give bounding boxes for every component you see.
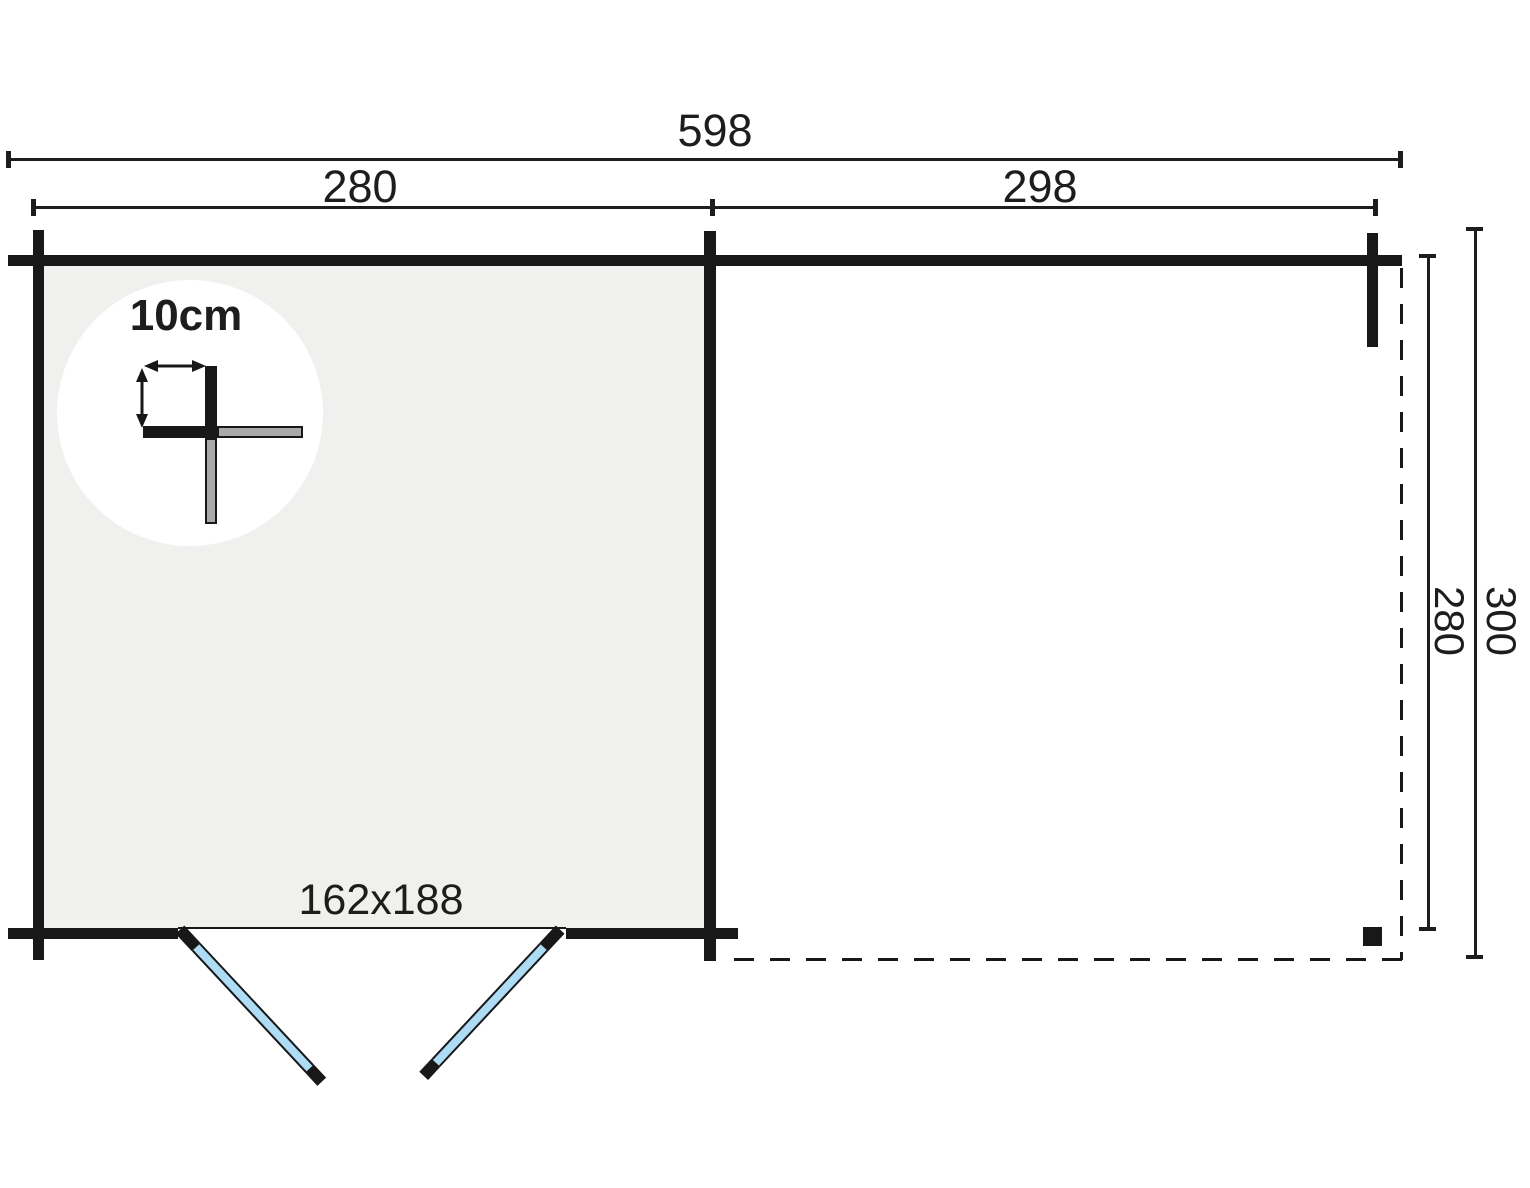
dim-tick — [1398, 151, 1403, 168]
inner-depth-label: 280 — [1428, 556, 1470, 686]
dim-tick — [1373, 199, 1378, 216]
wall-bottom-left-of-door — [8, 928, 178, 939]
floor-plan: 598 280 298 280 300 10cm 162x188 — [0, 0, 1530, 1188]
wall-thickness-label: 10cm — [116, 294, 256, 338]
door-leaf-glass — [432, 943, 549, 1067]
dim-tick — [6, 151, 11, 168]
dim-line-overall-width — [8, 158, 1402, 161]
door-size-label: 162x188 — [271, 879, 491, 921]
dim-line-overall-depth — [1474, 229, 1477, 958]
detail-log-up — [205, 366, 217, 438]
dim-tick — [1419, 254, 1436, 258]
wall-bottom-right-of-door — [566, 928, 738, 939]
cabin-width-label: 280 — [295, 166, 425, 208]
dim-tick — [710, 199, 715, 216]
door-leaf-right — [419, 926, 564, 1080]
terrace-edge-bottom-dashed — [734, 958, 1403, 961]
detail-log-left — [143, 426, 205, 438]
annex-width-label: 298 — [975, 166, 1105, 208]
dim-tick — [1466, 955, 1483, 959]
dim-tick — [1466, 227, 1483, 231]
door-leaf-glass — [192, 943, 314, 1073]
door-leaf-left — [176, 926, 327, 1086]
door-threshold-line — [178, 927, 566, 929]
wall-middle — [704, 231, 716, 961]
detail-log-right — [217, 426, 303, 438]
door-leaf-hinge — [539, 926, 564, 952]
detail-log-down — [205, 438, 217, 524]
overall-depth-label: 300 — [1480, 556, 1522, 686]
terrace-post-bottom-right — [1363, 927, 1382, 946]
double-arrow-vertical-icon — [134, 368, 150, 428]
wall-left — [33, 230, 44, 960]
dim-line-cabin-annex — [33, 206, 1377, 209]
dim-tick — [31, 199, 36, 216]
double-arrow-horizontal-icon — [144, 358, 206, 374]
terrace-post-top-right — [1367, 233, 1378, 347]
dim-tick — [1419, 927, 1436, 931]
terrace-edge-right-dashed — [1400, 268, 1403, 960]
overall-width-label: 598 — [650, 110, 780, 152]
